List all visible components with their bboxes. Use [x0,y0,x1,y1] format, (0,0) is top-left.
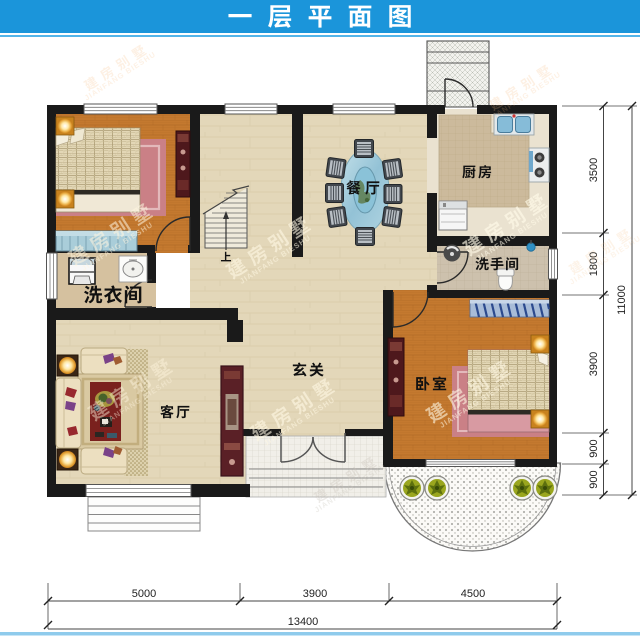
svg-text:4500: 4500 [461,588,485,600]
svg-text:11000: 11000 [616,285,628,315]
svg-text:3900: 3900 [588,352,600,376]
svg-text:900: 900 [588,470,600,488]
svg-text:900: 900 [588,439,600,457]
svg-text:5000: 5000 [132,588,156,600]
svg-text:3900: 3900 [303,588,327,600]
svg-text:13400: 13400 [288,616,319,628]
svg-text:3500: 3500 [588,158,600,182]
